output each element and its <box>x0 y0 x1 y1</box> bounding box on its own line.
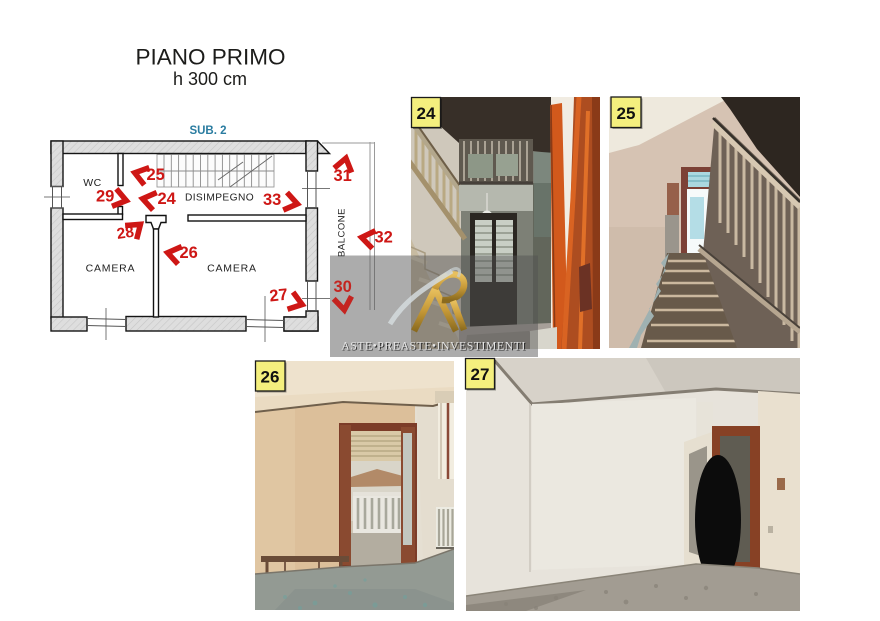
svg-text:24: 24 <box>417 104 436 123</box>
svg-text:27: 27 <box>269 286 289 306</box>
svg-text:SUB. 2: SUB. 2 <box>189 125 226 137</box>
svg-text:27: 27 <box>471 365 490 384</box>
svg-text:DISIMPEGNO: DISIMPEGNO <box>185 193 254 204</box>
svg-text:PIANO PRIMO: PIANO PRIMO <box>135 45 285 70</box>
svg-text:32: 32 <box>375 229 393 247</box>
svg-text:31: 31 <box>334 167 352 185</box>
svg-text:CAMERA: CAMERA <box>86 263 136 275</box>
svg-text:30: 30 <box>334 278 352 296</box>
svg-text:ASTE•PREASTE•INVESTIMENTI: ASTE•PREASTE•INVESTIMENTI <box>341 339 526 353</box>
svg-text:h 300 cm: h 300 cm <box>173 69 247 89</box>
svg-text:25: 25 <box>147 166 165 184</box>
svg-text:26: 26 <box>180 244 198 262</box>
svg-text:BALCONE: BALCONE <box>337 208 348 257</box>
svg-text:24: 24 <box>158 190 177 208</box>
svg-text:29: 29 <box>96 188 114 206</box>
svg-text:33: 33 <box>263 191 281 209</box>
svg-text:26: 26 <box>261 368 280 387</box>
svg-text:28: 28 <box>116 224 136 243</box>
svg-text:25: 25 <box>617 104 636 123</box>
svg-text:CAMERA: CAMERA <box>207 263 257 275</box>
